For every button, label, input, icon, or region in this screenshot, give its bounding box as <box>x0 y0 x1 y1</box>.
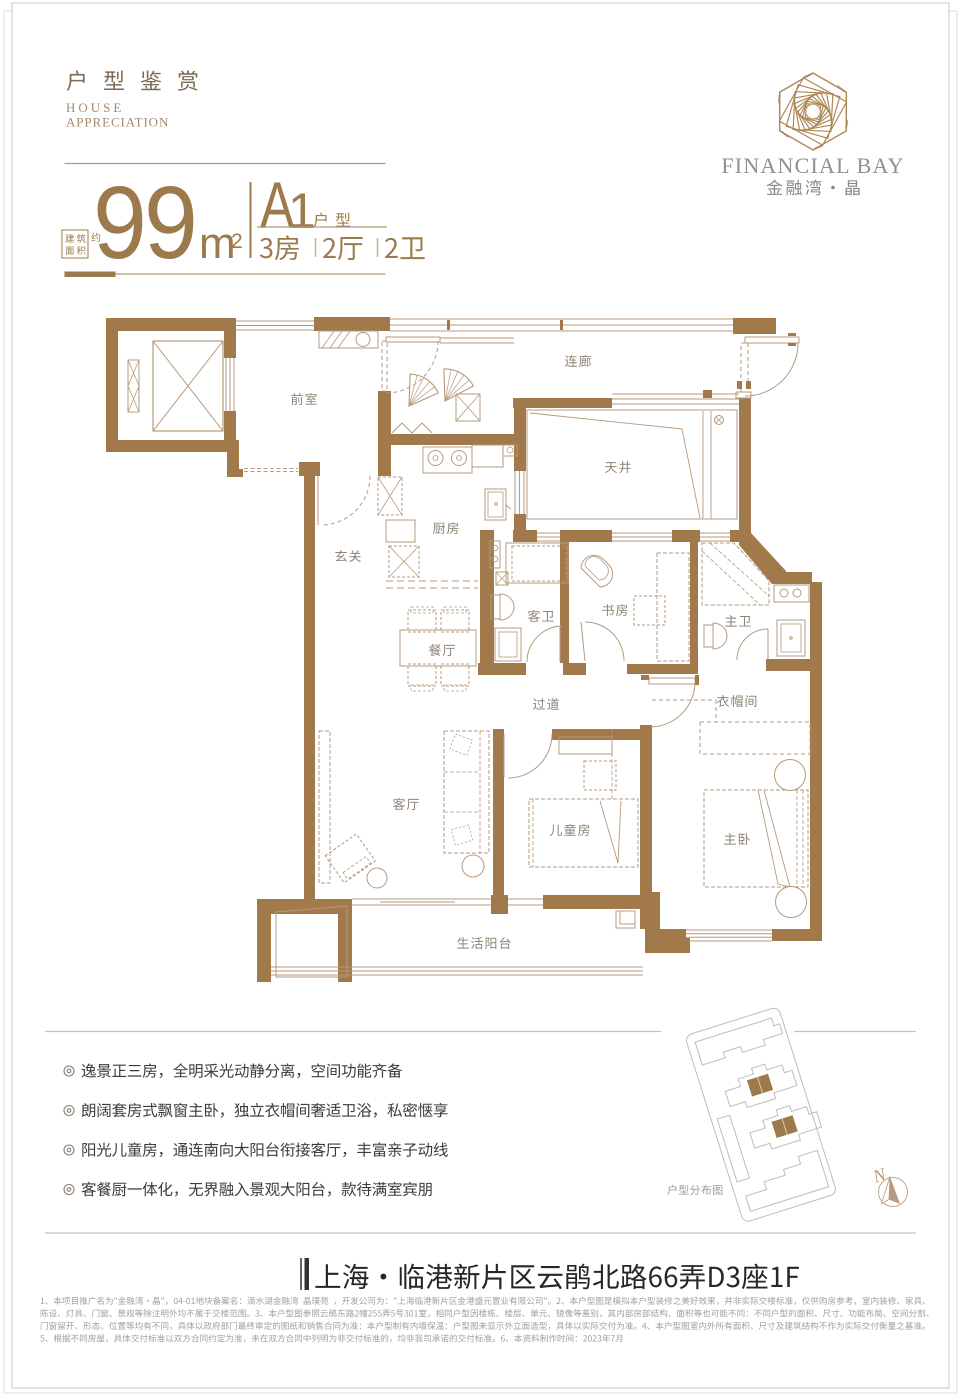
svg-text:2: 2 <box>231 230 243 253</box>
svg-text:FINANCIAL BAY: FINANCIAL BAY <box>721 153 904 178</box>
svg-text:1: 1 <box>288 183 316 239</box>
svg-text:APPRECIATION: APPRECIATION <box>66 115 169 130</box>
svg-text:99: 99 <box>93 166 195 280</box>
svg-text:HOUSE: HOUSE <box>66 100 124 115</box>
